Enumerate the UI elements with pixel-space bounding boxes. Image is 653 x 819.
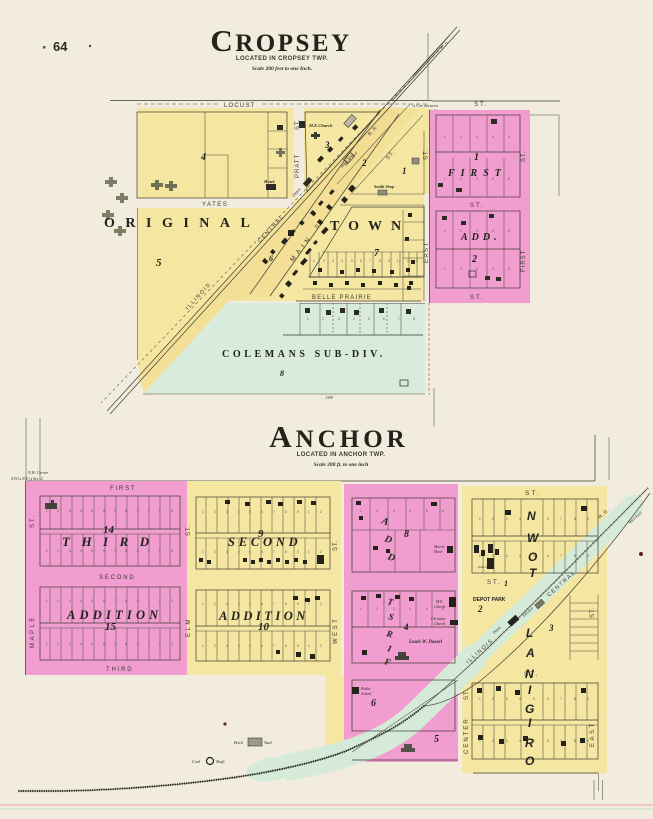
svg-text:3: 3 [506, 554, 508, 558]
svg-text:6: 6 [103, 509, 105, 513]
svg-text:LOCUST: LOCUST [224, 103, 256, 109]
svg-text:Church: Church [434, 622, 445, 626]
svg-text:ST.: ST. [30, 513, 36, 528]
svg-text:2: 2 [460, 267, 462, 271]
svg-text:1: 1 [444, 177, 446, 181]
svg-text:6: 6 [442, 607, 444, 611]
svg-text:3: 3 [506, 517, 508, 521]
svg-text:3: 3 [171, 549, 173, 553]
svg-text:9: 9 [297, 550, 299, 554]
svg-text:8: 8 [285, 644, 287, 648]
svg-text:BELLE PRAIRIE: BELLE PRAIRIE [312, 295, 372, 301]
svg-text:8: 8 [280, 369, 284, 378]
svg-text:5: 5 [91, 509, 93, 513]
svg-text:Hotel: Hotel [433, 550, 442, 554]
svg-text:6: 6 [547, 554, 549, 558]
svg-text:L: L [526, 626, 533, 640]
svg-text:5: 5 [533, 517, 535, 521]
svg-text:6: 6 [547, 697, 549, 701]
svg-text:8: 8 [125, 599, 127, 603]
svg-text:2: 2 [477, 604, 483, 614]
svg-text:Shaft: Shaft [216, 759, 225, 764]
svg-text:9: 9 [297, 510, 299, 514]
svg-text:9: 9 [587, 517, 589, 521]
svg-text:Scale 200 feet to one Inch.: Scale 200 feet to one Inch. [252, 66, 312, 72]
svg-text:2: 2 [214, 644, 216, 648]
svg-text:6: 6 [261, 510, 263, 514]
svg-text:2: 2 [159, 509, 161, 513]
svg-text:9: 9 [137, 549, 139, 553]
svg-text:2: 2 [460, 177, 462, 181]
svg-text:ST.: ST. [590, 606, 596, 618]
svg-text:4: 4 [200, 152, 206, 163]
svg-text:2: 2 [57, 509, 59, 513]
svg-text:Louis W. Dassel: Louis W. Dassel [408, 640, 443, 645]
svg-text:CENTER: CENTER [464, 717, 470, 754]
svg-text:4: 4 [519, 697, 521, 701]
svg-text:EAST: EAST [590, 721, 596, 747]
svg-text:5: 5 [351, 259, 353, 263]
svg-text:ST.: ST. [470, 203, 485, 209]
svg-text:YATES: YATES [202, 202, 228, 208]
svg-text:EAST: EAST [424, 241, 430, 263]
svg-text:7: 7 [273, 644, 275, 648]
svg-text:1: 1 [444, 135, 446, 139]
svg-text:9: 9 [297, 644, 299, 648]
svg-text:3: 3 [171, 642, 173, 646]
svg-text:3: 3 [476, 267, 478, 271]
svg-text:2: 2 [159, 642, 161, 646]
svg-text:4: 4 [80, 509, 82, 513]
svg-text:5: 5 [533, 554, 535, 558]
svg-text:4: 4 [238, 510, 240, 514]
svg-text:6: 6 [547, 739, 549, 743]
svg-text:4: 4 [519, 739, 521, 743]
svg-text:2: 2 [460, 135, 462, 139]
svg-text:6: 6 [383, 317, 385, 321]
svg-text:2: 2 [407, 259, 409, 263]
svg-text:5: 5 [249, 550, 251, 554]
svg-text:2: 2 [214, 550, 216, 554]
svg-text:3: 3 [226, 602, 228, 606]
svg-text:2: 2 [214, 602, 216, 606]
svg-text:5: 5 [508, 267, 510, 271]
svg-text:SECOND: SECOND [228, 535, 302, 549]
svg-text:1399: 1399 [325, 395, 333, 400]
svg-text:1: 1 [308, 510, 310, 514]
svg-text:15: 15 [105, 621, 117, 633]
svg-text:8: 8 [574, 554, 576, 558]
svg-text:Brick: Brick [234, 740, 243, 745]
svg-text:School: School [361, 692, 371, 696]
svg-text:5: 5 [91, 599, 93, 603]
svg-text:ORIGINAL: ORIGINAL [104, 216, 260, 231]
svg-text:1: 1 [202, 602, 204, 606]
svg-text:M.E.: M.E. [435, 600, 443, 604]
svg-text:5: 5 [249, 602, 251, 606]
svg-text:4: 4 [238, 550, 240, 554]
svg-text:ST.: ST. [474, 102, 489, 108]
svg-text:2: 2 [159, 549, 161, 553]
svg-text:Scale 200 ft. to one inch: Scale 200 ft. to one inch [314, 462, 369, 468]
svg-text:7: 7 [560, 739, 562, 743]
svg-text:8: 8 [285, 510, 287, 514]
svg-text:LOCATED IN CROPSEY TWP.: LOCATED IN CROPSEY TWP. [236, 56, 328, 62]
svg-text:1: 1 [46, 599, 48, 603]
svg-text:4: 4 [492, 267, 494, 271]
svg-text:1: 1 [148, 642, 150, 646]
svg-text:8: 8 [379, 259, 381, 263]
svg-text:8: 8 [574, 739, 576, 743]
svg-text:1: 1 [202, 644, 204, 648]
svg-text:COLEMANS SUB-DIV.: COLEMANS SUB-DIV. [222, 349, 386, 360]
svg-text:Coal: Coal [192, 759, 201, 764]
svg-text:Public: Public [360, 687, 371, 691]
svg-text:3: 3 [226, 550, 228, 554]
svg-text:8: 8 [125, 509, 127, 513]
svg-text:G: G [525, 702, 534, 716]
svg-text:ST.: ST. [186, 524, 192, 536]
svg-text:PRATT: PRATT [295, 154, 301, 178]
svg-text:3: 3 [548, 623, 554, 633]
svg-text:N: N [525, 667, 534, 681]
svg-text:THIRD: THIRD [106, 667, 133, 673]
svg-text:3: 3 [476, 135, 478, 139]
svg-text:9: 9 [587, 554, 589, 558]
svg-text:2: 2 [492, 517, 494, 521]
svg-text:7: 7 [273, 550, 275, 554]
svg-text:3: 3 [476, 177, 478, 181]
svg-text:2: 2 [492, 697, 494, 701]
svg-text:ST.: ST. [525, 490, 540, 497]
svg-text:1: 1 [479, 739, 481, 743]
svg-text:1: 1 [444, 267, 446, 271]
svg-text:64: 64 [53, 39, 68, 54]
svg-text:LOCATED IN ANCHOR TWP.: LOCATED IN ANCHOR TWP. [297, 452, 386, 458]
svg-text:1: 1 [46, 549, 48, 553]
svg-text:4: 4 [403, 622, 409, 632]
svg-text:1: 1 [148, 599, 150, 603]
svg-text:2: 2 [57, 642, 59, 646]
svg-text:3: 3 [416, 259, 418, 263]
svg-text:7: 7 [273, 602, 275, 606]
svg-text:5: 5 [249, 510, 251, 514]
svg-text:4: 4 [341, 259, 343, 263]
svg-text:5: 5 [508, 135, 510, 139]
svg-text:9: 9 [137, 642, 139, 646]
svg-text:1: 1 [402, 166, 407, 176]
svg-text:7: 7 [114, 599, 116, 603]
svg-text:9: 9 [137, 509, 139, 513]
svg-text:W: W [527, 531, 540, 545]
svg-text:2: 2 [361, 158, 367, 168]
svg-text:1: 1 [46, 642, 48, 646]
svg-text:1: 1 [308, 550, 310, 554]
svg-text:3: 3 [393, 509, 395, 513]
svg-text:N.W. Corner: N.W. Corner [27, 470, 49, 475]
svg-text:4: 4 [492, 135, 494, 139]
svg-text:8: 8 [404, 529, 409, 540]
svg-text:5: 5 [156, 257, 162, 269]
svg-text:6: 6 [103, 599, 105, 603]
svg-text:FIRST: FIRST [110, 486, 136, 492]
svg-text:5: 5 [533, 739, 535, 743]
svg-text:2: 2 [323, 259, 325, 263]
svg-text:6: 6 [360, 259, 362, 263]
svg-text:8: 8 [413, 317, 415, 321]
svg-text:3: 3 [332, 259, 334, 263]
svg-text:1: 1 [148, 549, 150, 553]
svg-text:3: 3 [226, 644, 228, 648]
svg-text:THIRD: THIRD [62, 534, 161, 549]
svg-text:6: 6 [103, 549, 105, 553]
svg-text:1: 1 [202, 550, 204, 554]
svg-text:2: 2 [492, 554, 494, 558]
svg-text:2: 2 [159, 599, 161, 603]
svg-text:2: 2 [460, 229, 462, 233]
svg-text:1: 1 [148, 509, 150, 513]
svg-text:ELM: ELM [186, 617, 192, 637]
svg-text:4: 4 [492, 177, 494, 181]
svg-text:ST.: ST. [487, 580, 502, 586]
svg-text:6: 6 [269, 254, 273, 263]
svg-text:2: 2 [376, 607, 378, 611]
svg-text:4: 4 [409, 607, 411, 611]
svg-text:5: 5 [434, 734, 439, 745]
svg-text:2: 2 [57, 549, 59, 553]
svg-text:6: 6 [261, 602, 263, 606]
svg-text:8: 8 [125, 642, 127, 646]
svg-text:8: 8 [285, 602, 287, 606]
svg-text:1: 1 [313, 259, 315, 263]
svg-text:9: 9 [587, 697, 589, 701]
svg-text:S.W.¼ N.E.¼ Sec. 2: S.W.¼ N.E.¼ Sec. 2 [11, 476, 43, 481]
svg-text:6: 6 [261, 550, 263, 554]
svg-text:10: 10 [258, 621, 270, 633]
svg-text:3: 3 [226, 510, 228, 514]
svg-text:4: 4 [353, 317, 355, 321]
svg-text:ST.: ST. [424, 148, 430, 160]
svg-text:6: 6 [103, 642, 105, 646]
svg-text:3: 3 [506, 739, 508, 743]
svg-text:9: 9 [587, 739, 589, 743]
svg-text:ADD.: ADD. [460, 232, 501, 243]
svg-text:5: 5 [508, 177, 510, 181]
svg-text:3: 3 [69, 509, 71, 513]
svg-text:ST.: ST. [521, 150, 527, 162]
svg-text:6: 6 [261, 644, 263, 648]
svg-text:Smith Shop: Smith Shop [374, 184, 394, 189]
svg-text:5: 5 [533, 697, 535, 701]
svg-text:4: 4 [409, 509, 411, 513]
svg-text:4: 4 [80, 642, 82, 646]
svg-text:WEST: WEST [333, 617, 339, 644]
svg-text:3: 3 [506, 697, 508, 701]
svg-text:ADDITION: ADDITION [66, 608, 162, 622]
svg-text:1: 1 [308, 602, 310, 606]
svg-text:7: 7 [560, 697, 562, 701]
svg-text:TOWN: TOWN [330, 219, 410, 234]
svg-text:7: 7 [560, 554, 562, 558]
svg-text:1: 1 [397, 259, 399, 263]
svg-text:1: 1 [444, 229, 446, 233]
svg-text:9: 9 [297, 602, 299, 606]
svg-text:5: 5 [91, 549, 93, 553]
svg-text:7: 7 [560, 517, 562, 521]
svg-text:1: 1 [360, 509, 362, 513]
svg-text:Morris: Morris [433, 545, 445, 549]
svg-text:5: 5 [249, 644, 251, 648]
svg-text:5: 5 [426, 607, 428, 611]
svg-text:9: 9 [388, 259, 390, 263]
svg-text:1: 1 [504, 579, 508, 588]
svg-text:1: 1 [46, 509, 48, 513]
svg-text:7: 7 [114, 549, 116, 553]
svg-text:MAPLE: MAPLE [30, 615, 36, 648]
svg-text:3: 3 [69, 599, 71, 603]
svg-text:6: 6 [442, 509, 444, 513]
svg-text:1: 1 [360, 607, 362, 611]
svg-text:4: 4 [238, 602, 240, 606]
svg-text:3: 3 [171, 509, 173, 513]
svg-text:2: 2 [376, 509, 378, 513]
svg-text:3: 3 [476, 229, 478, 233]
svg-text:3: 3 [171, 599, 173, 603]
svg-text:2: 2 [322, 317, 324, 321]
svg-text:5: 5 [426, 509, 428, 513]
svg-text:5: 5 [368, 317, 370, 321]
svg-text:O: O [525, 754, 535, 768]
svg-text:9: 9 [137, 599, 139, 603]
svg-text:Yard: Yard [264, 740, 273, 745]
svg-text:4: 4 [80, 599, 82, 603]
svg-text:5: 5 [508, 229, 510, 233]
svg-text:1: 1 [479, 517, 481, 521]
svg-text:DEPOT PARK: DEPOT PARK [473, 597, 506, 603]
svg-text:East Side: East Side [477, 565, 492, 569]
svg-text:1: 1 [479, 554, 481, 558]
svg-text:M.E.Church: M.E.Church [308, 123, 333, 128]
svg-text:4: 4 [519, 517, 521, 521]
svg-text:3: 3 [69, 642, 71, 646]
svg-text:2: 2 [57, 599, 59, 603]
svg-text:8: 8 [574, 517, 576, 521]
svg-text:8: 8 [285, 550, 287, 554]
svg-text:3: 3 [338, 317, 340, 321]
svg-text:FIRST: FIRST [521, 250, 527, 272]
svg-text:2: 2 [320, 644, 322, 648]
svg-text:6: 6 [547, 517, 549, 521]
svg-text:2: 2 [471, 254, 477, 265]
svg-text:1: 1 [308, 644, 310, 648]
svg-text:ST.: ST. [333, 539, 339, 551]
svg-text:8: 8 [574, 697, 576, 701]
svg-text:Christian: Christian [431, 617, 445, 621]
svg-text:1: 1 [479, 697, 481, 701]
svg-text:3: 3 [69, 549, 71, 553]
svg-text:3: 3 [393, 607, 395, 611]
svg-text:1: 1 [474, 152, 479, 163]
svg-text:1: 1 [307, 317, 309, 321]
svg-text:6: 6 [371, 698, 376, 709]
svg-text:SECOND: SECOND [99, 575, 135, 581]
svg-text:2: 2 [320, 550, 322, 554]
svg-text:2: 2 [320, 510, 322, 514]
svg-text:7: 7 [273, 510, 275, 514]
svg-text:7: 7 [398, 317, 400, 321]
svg-text:ST.: ST. [464, 688, 470, 700]
svg-text:Hotel.: Hotel. [263, 179, 275, 184]
svg-text:7: 7 [114, 642, 116, 646]
svg-text:4: 4 [519, 554, 521, 558]
svg-text:5: 5 [91, 642, 93, 646]
svg-text:8: 8 [125, 549, 127, 553]
svg-text:2: 2 [492, 739, 494, 743]
svg-text:7: 7 [114, 509, 116, 513]
svg-text:1: 1 [202, 510, 204, 514]
svg-text:4: 4 [80, 549, 82, 553]
svg-text:A: A [525, 646, 535, 660]
svg-text:ST.: ST. [470, 295, 485, 301]
svg-text:4: 4 [238, 644, 240, 648]
svg-text:7: 7 [369, 259, 371, 263]
svg-text:4: 4 [492, 229, 494, 233]
svg-text:2: 2 [214, 510, 216, 514]
svg-text:2: 2 [320, 602, 322, 606]
